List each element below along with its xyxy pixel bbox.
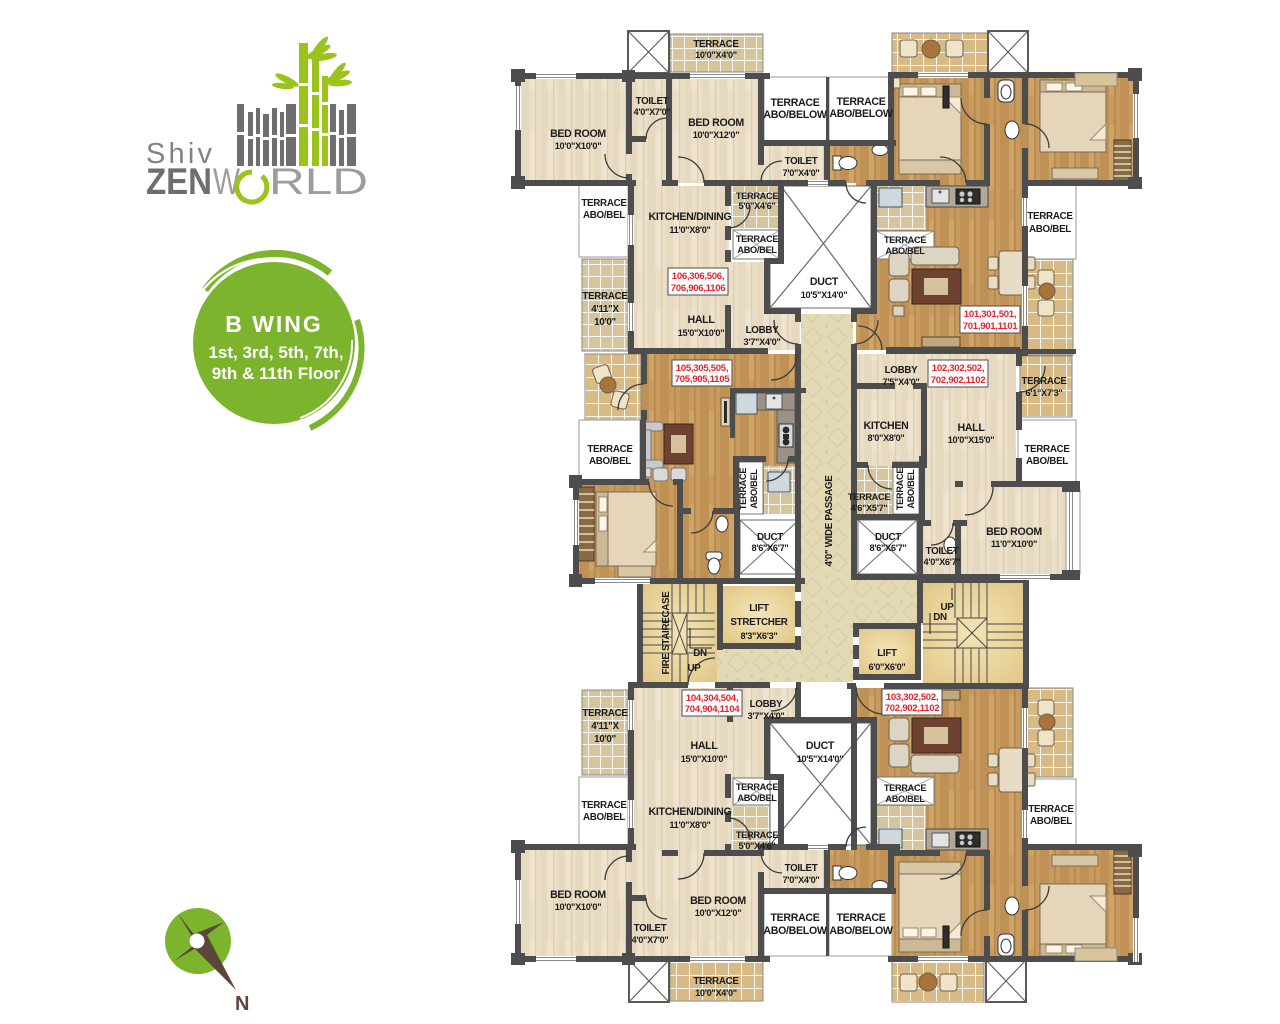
- svg-text:HALL: HALL: [957, 422, 985, 434]
- svg-text:ABO/BEL: ABO/BEL: [583, 210, 625, 221]
- svg-text:ZEN: ZEN: [146, 161, 212, 202]
- svg-text:TERRACE: TERRACE: [581, 198, 627, 209]
- svg-text:10'0"X10'0": 10'0"X10'0": [555, 141, 602, 151]
- svg-text:N: N: [235, 993, 249, 1015]
- svg-text:ABO/BEL: ABO/BEL: [737, 793, 777, 803]
- svg-text:UP: UP: [687, 663, 701, 674]
- svg-text:TERRACE: TERRACE: [1027, 211, 1073, 222]
- svg-text:TERRACE: TERRACE: [693, 39, 739, 50]
- svg-text:TERRACE: TERRACE: [693, 976, 739, 987]
- svg-text:702,902,1102: 702,902,1102: [931, 375, 986, 386]
- svg-text:TERRACE: TERRACE: [581, 800, 627, 811]
- svg-text:4'0"X6'7": 4'0"X6'7": [924, 557, 961, 567]
- svg-text:11'0"X10'0": 11'0"X10'0": [991, 539, 1037, 549]
- svg-text:8'3"X6'3": 8'3"X6'3": [741, 631, 778, 641]
- svg-text:1st, 3rd, 5th, 7th,: 1st, 3rd, 5th, 7th,: [208, 343, 343, 362]
- svg-text:10'0"X15'0": 10'0"X15'0": [948, 435, 995, 445]
- svg-text:DN: DN: [693, 648, 707, 659]
- svg-text:LIFT: LIFT: [877, 648, 897, 659]
- svg-text:702,902,1102: 702,902,1102: [885, 703, 940, 714]
- svg-text:KITCHEN/DINING: KITCHEN/DINING: [649, 211, 732, 223]
- svg-text:DUCT: DUCT: [806, 740, 835, 752]
- svg-text:ABO/BEL: ABO/BEL: [885, 246, 925, 256]
- svg-text:TERRACE: TERRACE: [582, 708, 628, 719]
- svg-text:TERRACE: TERRACE: [738, 468, 748, 510]
- svg-text:TERRACE: TERRACE: [587, 444, 633, 455]
- svg-text:7'0"X4'0": 7'0"X4'0": [783, 168, 820, 178]
- svg-text:704,904,1104: 704,904,1104: [685, 704, 741, 715]
- svg-text:ABO/BEL: ABO/BEL: [749, 469, 759, 509]
- svg-text:10'5"X14'0": 10'5"X14'0": [797, 754, 844, 764]
- svg-text:8'6"X6'7": 8'6"X6'7": [752, 543, 789, 553]
- svg-text:8'0"X8'0": 8'0"X8'0": [868, 433, 905, 443]
- svg-text:B WING: B WING: [225, 311, 323, 337]
- svg-text:ABO/BEL: ABO/BEL: [1029, 224, 1071, 235]
- svg-text:HALL: HALL: [690, 740, 718, 752]
- svg-text:HALL: HALL: [687, 314, 715, 326]
- svg-text:KITCHEN: KITCHEN: [864, 420, 909, 432]
- svg-text:TERRACE: TERRACE: [736, 234, 778, 244]
- svg-text:TERRACE: TERRACE: [836, 96, 885, 108]
- svg-text:105,305,505,: 105,305,505,: [676, 363, 729, 374]
- svg-text:STRETCHER: STRETCHER: [730, 617, 787, 628]
- svg-text:DUCT: DUCT: [810, 276, 839, 288]
- svg-text:3'7"X4'0": 3'7"X4'0": [744, 337, 781, 347]
- svg-text:3'7"X4'0": 3'7"X4'0": [748, 711, 785, 721]
- svg-text:BED ROOM: BED ROOM: [688, 117, 744, 129]
- svg-text:LIFT: LIFT: [749, 603, 769, 614]
- svg-text:BED ROOM: BED ROOM: [550, 889, 606, 901]
- svg-text:4'0"X7'0": 4'0"X7'0": [634, 107, 671, 117]
- svg-text:ABO/BELOW: ABO/BELOW: [763, 925, 827, 937]
- svg-text:4'11"X: 4'11"X: [591, 304, 619, 315]
- svg-text:TERRACE: TERRACE: [770, 97, 819, 109]
- svg-text:6'0"X6'0": 6'0"X6'0": [869, 662, 906, 672]
- svg-text:705,905,1105: 705,905,1105: [675, 374, 731, 385]
- svg-text:ABO/BELOW: ABO/BELOW: [829, 925, 893, 937]
- svg-text:5'0"X4'6": 5'0"X4'6": [739, 841, 776, 851]
- svg-text:101,301,501,: 101,301,501,: [964, 309, 1017, 320]
- svg-text:10'0"X12'0": 10'0"X12'0": [695, 908, 742, 918]
- svg-text:TERRACE: TERRACE: [1024, 444, 1070, 455]
- svg-text:10'0": 10'0": [594, 734, 616, 745]
- svg-text:TOILET: TOILET: [636, 96, 669, 107]
- svg-text:10'0"X4'0": 10'0"X4'0": [695, 50, 737, 60]
- svg-text:ABO/BEL: ABO/BEL: [589, 456, 631, 467]
- svg-text:102,302,502,: 102,302,502,: [932, 363, 985, 374]
- svg-text:TOILET: TOILET: [785, 156, 818, 167]
- svg-text:ABO/BEL: ABO/BEL: [583, 812, 625, 823]
- svg-text:ABO/BEL: ABO/BEL: [737, 245, 777, 255]
- svg-text:DN: DN: [933, 612, 947, 623]
- svg-text:TERRACE: TERRACE: [582, 291, 628, 302]
- svg-text:103,302,502,: 103,302,502,: [886, 692, 939, 703]
- svg-text:7'0"X4'0": 7'0"X4'0": [783, 875, 820, 885]
- svg-text:FIRE STAIRECASE: FIRE STAIRECASE: [661, 591, 672, 675]
- svg-text:ABO/BEL: ABO/BEL: [885, 794, 925, 804]
- svg-text:4'6"X5'7": 4'6"X5'7": [851, 503, 888, 513]
- svg-text:TOILET: TOILET: [926, 546, 959, 557]
- svg-text:TERRACE: TERRACE: [736, 830, 778, 840]
- svg-text:10'0"X12'0": 10'0"X12'0": [693, 130, 740, 140]
- svg-text:TERRACE: TERRACE: [895, 468, 905, 510]
- svg-text:106,306,506,: 106,306,506,: [672, 271, 725, 282]
- svg-text:LOBBY: LOBBY: [750, 699, 784, 710]
- svg-text:104,304,504,: 104,304,504,: [686, 693, 739, 704]
- svg-text:4'0" WIDE PASSAGE: 4'0" WIDE PASSAGE: [824, 475, 835, 567]
- svg-text:TOILET: TOILET: [785, 863, 818, 874]
- svg-text:701,901,1101: 701,901,1101: [963, 321, 1019, 332]
- svg-text:ABO/BELOW: ABO/BELOW: [829, 108, 893, 120]
- svg-text:ABO/BEL: ABO/BEL: [906, 469, 916, 509]
- svg-text:15'0"X10'0": 15'0"X10'0": [678, 328, 725, 338]
- svg-text:TOILET: TOILET: [634, 923, 667, 934]
- svg-text:9th & 11th Floor: 9th & 11th Floor: [212, 364, 341, 383]
- svg-text:TERRACE: TERRACE: [848, 492, 890, 502]
- svg-text:706,906,1106: 706,906,1106: [671, 283, 726, 294]
- svg-text:BED ROOM: BED ROOM: [986, 526, 1042, 538]
- svg-text:4'0"X7'0": 4'0"X7'0": [632, 935, 669, 945]
- svg-text:TERRACE: TERRACE: [736, 782, 778, 792]
- svg-text:10'0"X10'0": 10'0"X10'0": [555, 902, 602, 912]
- svg-text:10'0": 10'0": [594, 317, 616, 328]
- svg-text:ABO/BEL: ABO/BEL: [1030, 816, 1072, 827]
- svg-text:11'0"X8'0": 11'0"X8'0": [669, 820, 710, 830]
- svg-text:10'5"X14'0": 10'5"X14'0": [801, 290, 848, 300]
- svg-text:BED ROOM: BED ROOM: [550, 128, 606, 140]
- svg-text:BED ROOM: BED ROOM: [690, 895, 746, 907]
- svg-text:TERRACE: TERRACE: [1021, 376, 1067, 387]
- svg-text:KITCHEN/DINING: KITCHEN/DINING: [649, 806, 732, 818]
- svg-text:ABO/BEL: ABO/BEL: [1026, 456, 1068, 467]
- svg-text:4'11"X: 4'11"X: [591, 721, 619, 732]
- svg-text:TERRACE: TERRACE: [884, 235, 926, 245]
- svg-text:7'5"X4'0": 7'5"X4'0": [883, 377, 920, 387]
- svg-text:11'0"X8'0": 11'0"X8'0": [669, 225, 710, 235]
- svg-text:RLD: RLD: [269, 161, 368, 202]
- svg-text:TERRACE: TERRACE: [770, 912, 819, 924]
- svg-text:TERRACE: TERRACE: [884, 783, 926, 793]
- svg-text:15'0"X10'0": 15'0"X10'0": [681, 754, 728, 764]
- svg-text:ABO/BELOW: ABO/BELOW: [763, 109, 827, 121]
- svg-text:8'6"X6'7": 8'6"X6'7": [870, 543, 907, 553]
- svg-text:5'0"X4'6": 5'0"X4'6": [739, 201, 776, 211]
- svg-text:TERRACE: TERRACE: [1028, 804, 1074, 815]
- svg-text:TERRACE: TERRACE: [736, 191, 778, 201]
- svg-text:10'0"X4'0": 10'0"X4'0": [695, 988, 737, 998]
- svg-text:DUCT: DUCT: [757, 532, 783, 543]
- svg-text:LOBBY: LOBBY: [885, 365, 919, 376]
- svg-text:TERRACE: TERRACE: [836, 912, 885, 924]
- svg-text:6'1"X7'3": 6'1"X7'3": [1026, 388, 1063, 398]
- svg-text:LOBBY: LOBBY: [746, 325, 780, 336]
- svg-text:DUCT: DUCT: [875, 532, 901, 543]
